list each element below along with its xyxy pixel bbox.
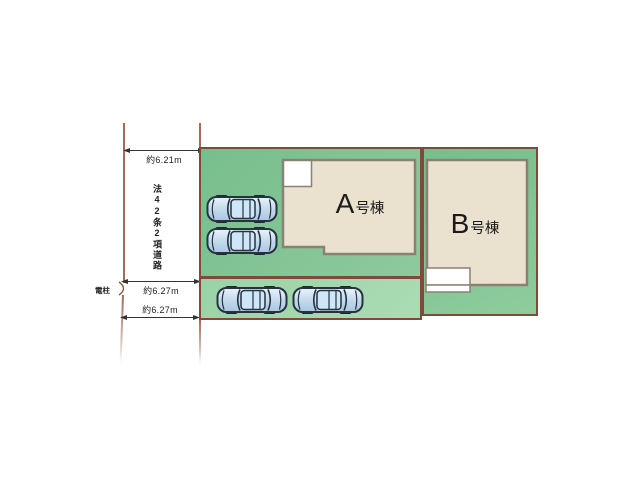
- building-a-label: A号棟: [305, 188, 415, 220]
- car-icon: [292, 286, 364, 314]
- dimension-label-top: 約6.21m: [123, 153, 205, 166]
- road-right-line-lower: [199, 320, 201, 364]
- plot-a-inner-boundary: [201, 276, 420, 279]
- site-plan: 電柱 約6.21m 約6.27m 約6.27m 法42条2項道路 A: [0, 0, 640, 480]
- dimension-label-middle: 約6.27m: [121, 284, 201, 297]
- road-name-label: 法42条2項道路: [152, 184, 161, 276]
- building-a-letter: A: [336, 188, 356, 219]
- building-b-letter: B: [451, 208, 471, 239]
- utility-pole-label: 電柱: [95, 285, 110, 296]
- dimension-arrow-bottom: [120, 313, 200, 322]
- building-b-label: B号棟: [425, 208, 525, 240]
- car-icon: [216, 286, 288, 314]
- building-b-suffix: 号棟: [470, 221, 499, 237]
- car-icon: [206, 227, 278, 255]
- car-icon: [206, 195, 278, 223]
- building-a-suffix: 号棟: [355, 201, 384, 217]
